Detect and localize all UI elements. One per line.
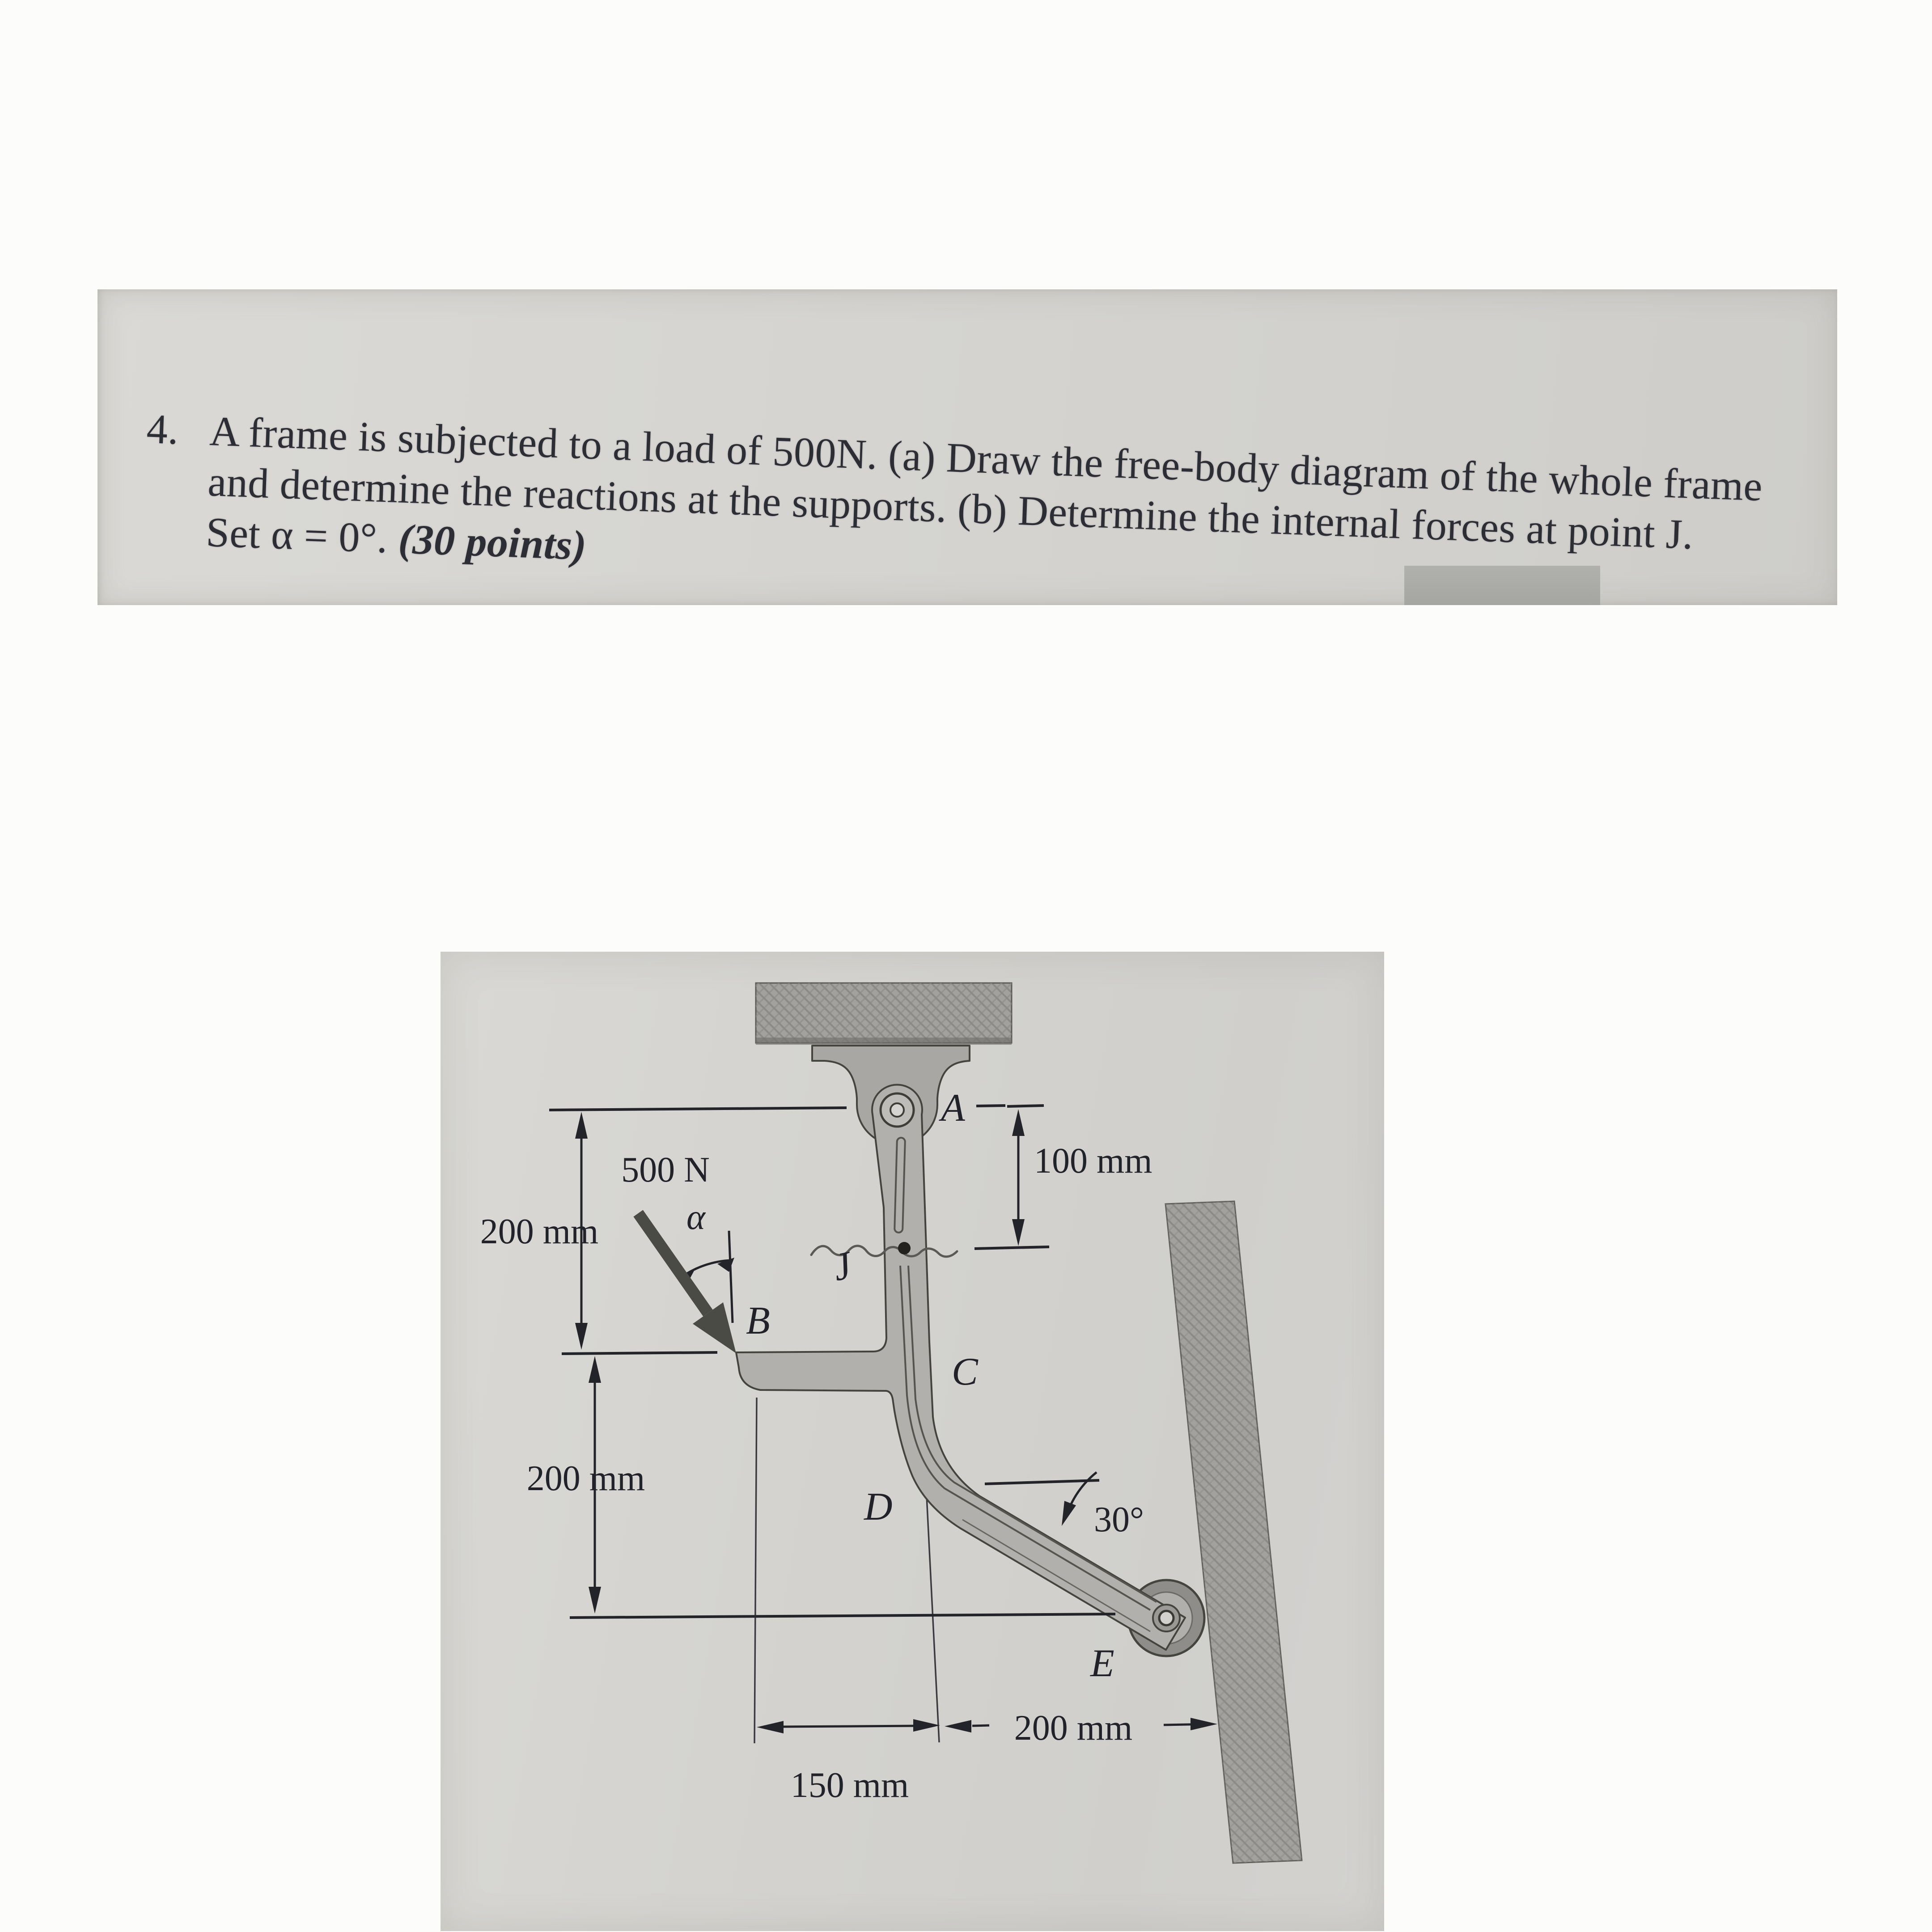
- ceiling-crosshatch: [756, 983, 1012, 1043]
- label-b: B: [746, 1299, 770, 1343]
- label-j: J: [829, 1243, 857, 1290]
- dim-label-150mm: 150 mm: [791, 1766, 909, 1805]
- member-detail-lines: [894, 1138, 1157, 1631]
- point-j-dot: [898, 1242, 911, 1254]
- tick-100-top: [1007, 1106, 1044, 1106]
- tick-a-dash: [976, 1106, 1005, 1106]
- wall: [1165, 1201, 1302, 1863]
- problem-points: (30 points): [398, 516, 587, 569]
- dim-200u-arrow-down: [575, 1323, 588, 1350]
- problem-number: 4.: [146, 404, 211, 457]
- roller-hub: [1153, 1605, 1180, 1631]
- load-label: 500 N: [621, 1150, 710, 1190]
- dim-100-arrow-up: [1012, 1109, 1025, 1136]
- angle-30-arrowhead: [1062, 1501, 1076, 1526]
- dim-label-200mm-upper: 200 mm: [480, 1212, 598, 1251]
- dim-label-200mm-bottom: 200 mm: [1014, 1708, 1132, 1748]
- wall-crosshatch: [1165, 1201, 1302, 1863]
- dim-150mm: [757, 1719, 940, 1733]
- frame-diagram: A B C D E J 500 N α 100 mm 200 mm 200 mm…: [441, 952, 1384, 1931]
- angle-30-label: 30°: [1094, 1500, 1144, 1539]
- pin-a-hole: [890, 1103, 904, 1117]
- roller-hub-hole: [1159, 1611, 1174, 1625]
- ceiling-bottom-edge: [756, 1038, 1012, 1045]
- figure-photo: A B C D E J 500 N α 100 mm 200 mm 200 mm…: [441, 952, 1384, 1931]
- dim-200l-arrow-up: [589, 1356, 601, 1383]
- extension-line-b: [754, 1398, 757, 1743]
- dim-200l-arrow-down: [589, 1587, 601, 1614]
- tick-b-level: [562, 1352, 717, 1354]
- dim-label-100mm: 100 mm: [1034, 1141, 1152, 1181]
- dim-200b-arrow-right: [1191, 1718, 1217, 1730]
- tick-bottom: [570, 1614, 1115, 1618]
- dim-150-arrow-right: [913, 1719, 940, 1732]
- problem-line-3-text: Set α = 0°.: [205, 509, 399, 562]
- alpha-label: α: [686, 1198, 706, 1237]
- dim-200u-arrow-up: [575, 1112, 588, 1139]
- scan-artifact-patch: [1404, 566, 1600, 605]
- dim-200b-line-left: [972, 1725, 989, 1726]
- tick-100-bottom: [974, 1247, 1049, 1249]
- problem-strip: 4.A frame is subjected to a load of 500N…: [97, 289, 1837, 605]
- pin-a: [881, 1093, 914, 1127]
- alpha-reference-line: [729, 1231, 733, 1323]
- page: 4.A frame is subjected to a load of 500N…: [0, 0, 1932, 1932]
- dim-100-arrow-down: [1012, 1219, 1025, 1246]
- tick-top-left: [549, 1108, 847, 1110]
- label-d: D: [864, 1485, 893, 1529]
- dim-100mm: [1012, 1109, 1025, 1246]
- dim-150-line: [781, 1726, 916, 1727]
- label-c: C: [952, 1350, 979, 1394]
- label-a: A: [939, 1086, 966, 1130]
- label-e: E: [1089, 1642, 1114, 1685]
- dim-200b-arrow-left: [945, 1720, 971, 1733]
- tick-30-reference: [985, 1480, 1099, 1484]
- dim-label-200mm-lower: 200 mm: [527, 1459, 645, 1498]
- dim-150-arrow-left: [757, 1721, 784, 1733]
- ceiling-block: [756, 983, 1012, 1045]
